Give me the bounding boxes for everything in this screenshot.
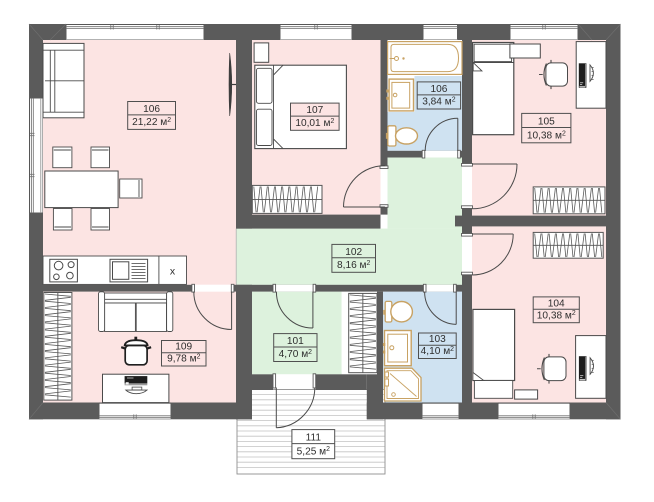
- svg-text:x: x: [170, 266, 176, 278]
- svg-text:101: 101: [287, 336, 304, 347]
- svg-text:103: 103: [429, 334, 446, 345]
- svg-text:3,84 м2: 3,84 м2: [422, 97, 455, 108]
- svg-text:106: 106: [430, 84, 447, 95]
- svg-text:9,78 м2: 9,78 м2: [167, 354, 200, 365]
- svg-text:21,22 м2: 21,22 м2: [132, 117, 171, 128]
- svg-text:109: 109: [175, 342, 192, 353]
- svg-text:10,38 м2: 10,38 м2: [537, 310, 576, 321]
- svg-text:104: 104: [548, 298, 565, 309]
- svg-text:4,70 м2: 4,70 м2: [279, 349, 312, 360]
- svg-text:102: 102: [345, 247, 362, 258]
- svg-text:107: 107: [306, 105, 323, 116]
- svg-text:8,16 м2: 8,16 м2: [337, 260, 370, 271]
- svg-text:10,38 м2: 10,38 м2: [527, 130, 566, 141]
- svg-text:105: 105: [538, 117, 555, 128]
- svg-text:111: 111: [306, 433, 322, 444]
- svg-text:106: 106: [143, 104, 160, 115]
- svg-text:5,25 м2: 5,25 м2: [297, 446, 330, 457]
- svg-text:10,01 м2: 10,01 м2: [295, 118, 334, 129]
- svg-text:4,10 м2: 4,10 м2: [421, 346, 454, 357]
